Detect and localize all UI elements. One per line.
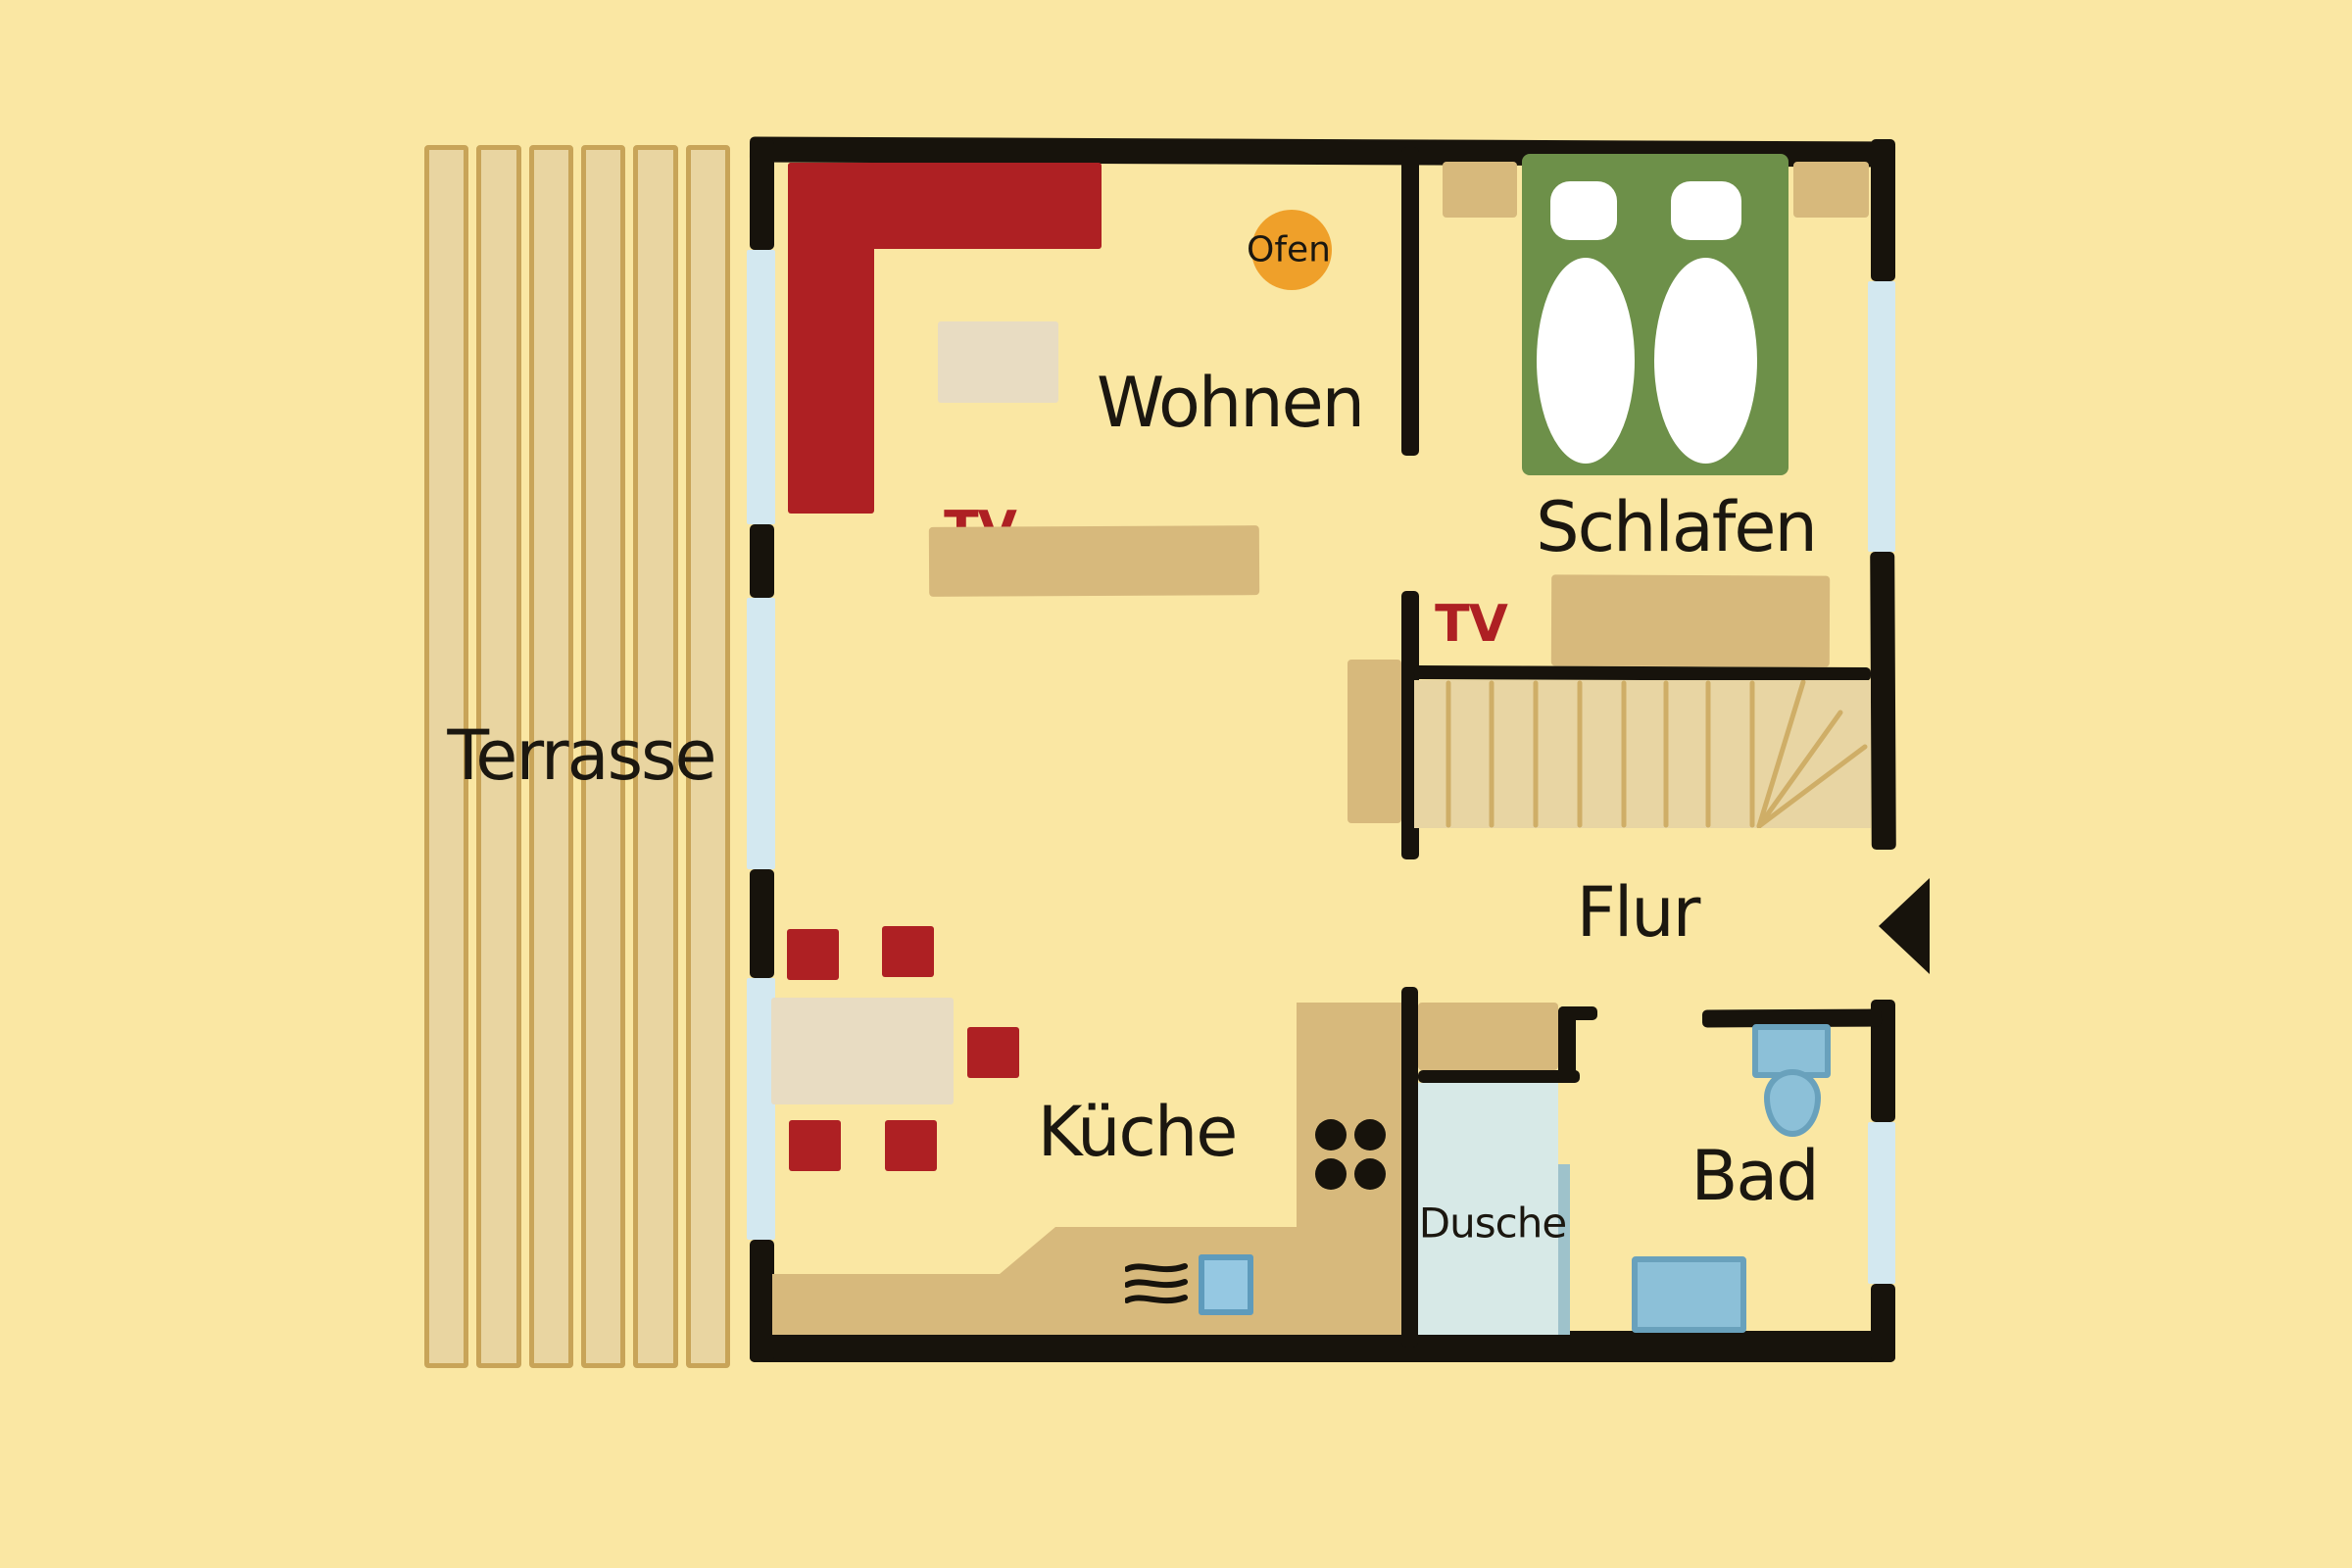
bad-label: Bad <box>1690 1136 1817 1216</box>
sink <box>1199 1254 1253 1315</box>
rug <box>938 321 1058 403</box>
ofen-label: Ofen <box>1247 230 1331 270</box>
cabinet-stairs <box>1347 660 1401 823</box>
wall-wohnen-schlafen <box>1401 147 1419 456</box>
dusche-shelf <box>1418 1003 1558 1070</box>
sideboard-tv <box>929 525 1259 597</box>
shower-glass <box>1558 1164 1570 1335</box>
wall-dusche-shelf <box>1418 1070 1580 1083</box>
entrance-arrow-icon <box>1879 878 1930 974</box>
wall-left <box>750 869 774 978</box>
wall-left <box>750 139 774 250</box>
window-bad <box>1868 1122 1895 1284</box>
wall-left <box>750 1240 774 1362</box>
stove-hob-icon <box>1354 1158 1386 1190</box>
double-bed <box>1522 154 1788 475</box>
wall-right <box>1870 552 1896 850</box>
dining-table <box>771 998 954 1104</box>
wohnen-label: Wohnen <box>1097 363 1363 443</box>
toilet-icon <box>1752 1024 1831 1137</box>
pillow <box>1671 181 1741 240</box>
chair <box>787 929 839 980</box>
chair <box>967 1027 1019 1078</box>
floor-plan: Terrasse <box>0 0 2352 1568</box>
dresser-schlafen <box>1551 574 1830 666</box>
wall-dusche-stub-top <box>1558 1006 1597 1020</box>
kueche-label: Küche <box>1038 1092 1237 1172</box>
flur-label: Flur <box>1577 872 1699 953</box>
stove-hob-icon <box>1354 1119 1386 1151</box>
stove-hob-icon <box>1315 1119 1347 1151</box>
sofa-section-vertical <box>788 163 874 514</box>
nightstand-left <box>1443 162 1517 218</box>
schlafen-label: Schlafen <box>1536 487 1816 567</box>
wall-kueche-dusche <box>1401 987 1418 1347</box>
chair <box>789 1120 841 1171</box>
steam-icon <box>1125 1259 1188 1308</box>
chair <box>882 926 934 977</box>
stair-treads <box>1414 680 1871 828</box>
window-schlafen <box>1868 281 1895 552</box>
window-left-2 <box>747 598 775 869</box>
dusche-label: Dusche <box>1419 1200 1566 1248</box>
wall-bottom <box>750 1331 1895 1362</box>
stove-hob-icon <box>1315 1158 1347 1190</box>
wall-schlafen-stairs <box>1414 665 1871 681</box>
wall-right <box>1871 1284 1895 1362</box>
wall-right <box>1871 139 1895 281</box>
toilet-bowl <box>1764 1069 1821 1137</box>
pillow <box>1550 181 1617 240</box>
tv-label-schlafen: TV <box>1435 595 1507 654</box>
window-left-1 <box>747 250 775 524</box>
washing-machine-icon <box>1632 1256 1746 1333</box>
duvet <box>1654 258 1757 464</box>
wall-left <box>750 524 774 598</box>
chair <box>885 1120 937 1171</box>
duvet <box>1537 258 1635 464</box>
terrasse-label: Terrasse <box>447 715 714 796</box>
nightstand-right <box>1793 162 1869 218</box>
staircase <box>1414 680 1871 828</box>
